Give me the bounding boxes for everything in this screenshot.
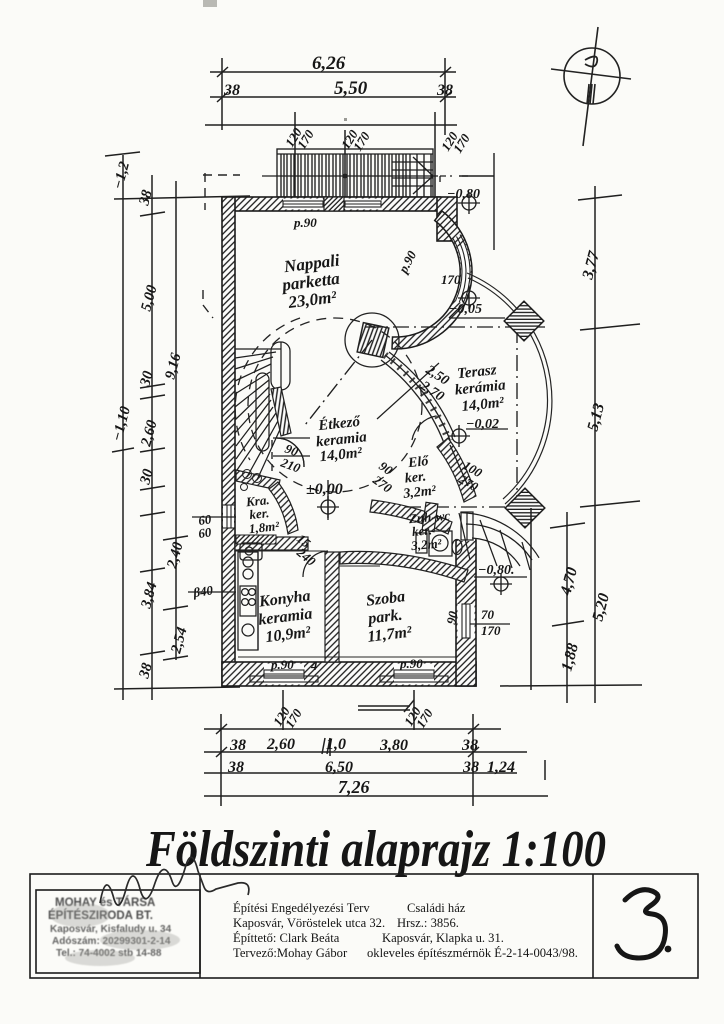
svg-text:5,20: 5,20 — [589, 592, 613, 623]
svg-text:6,26: 6,26 — [312, 53, 346, 74]
svg-text:Hrsz.: 3856.: Hrsz.: 3856. — [397, 916, 459, 930]
svg-text:7,26: 7,26 — [338, 777, 370, 797]
svg-text:4: 4 — [310, 658, 318, 673]
svg-text:38: 38 — [229, 737, 246, 754]
svg-text:Elő: Elő — [406, 454, 430, 471]
svg-text:5,00: 5,00 — [138, 283, 160, 313]
svg-text:Kaposvár, Klapka u. 31.: Kaposvár, Klapka u. 31. — [382, 931, 504, 945]
svg-text:170: 170 — [441, 272, 461, 287]
svg-text:−0,80: −0,80 — [447, 187, 480, 202]
svg-text:14,0m²: 14,0m² — [319, 445, 363, 465]
svg-text:Építtető: Clark Beáta: Építtető: Clark Beáta — [233, 931, 340, 945]
svg-text:38: 38 — [136, 661, 156, 681]
svg-text:38: 38 — [227, 759, 244, 776]
svg-text:−0,02: −0,02 — [466, 417, 499, 432]
svg-text:38: 38 — [223, 82, 240, 99]
svg-text:14,0m²: 14,0m² — [461, 395, 505, 415]
svg-text:3,2m²: 3,2m² — [410, 535, 444, 553]
svg-text:p.90: p.90 — [270, 657, 294, 672]
svg-text:1,0: 1,0 — [326, 736, 346, 753]
svg-text:38: 38 — [436, 82, 453, 99]
svg-text:p.90: p.90 — [395, 248, 420, 276]
svg-text:3,80: 3,80 — [379, 737, 408, 754]
svg-text:38: 38 — [136, 188, 156, 208]
svg-text:3,77: 3,77 — [579, 249, 603, 282]
svg-text:Építési Engedélyezési Terv: Építési Engedélyezési Terv — [233, 901, 370, 915]
svg-text:Tervező:Mohay Gábor: Tervező:Mohay Gábor — [233, 946, 348, 960]
svg-text:170: 170 — [481, 623, 501, 638]
svg-text:1,88: 1,88 — [558, 642, 582, 673]
svg-text:1,24: 1,24 — [487, 759, 515, 776]
svg-text:Földszinti alaprajz 1:100: Földszinti alaprajz 1:100 — [145, 821, 606, 878]
svg-text:38: 38 — [461, 737, 478, 754]
svg-text:70: 70 — [481, 607, 495, 622]
svg-text:2,40: 2,40 — [164, 540, 187, 571]
svg-text:−1,2: −1,2 — [110, 160, 133, 192]
svg-text:2,54: 2,54 — [168, 625, 191, 656]
svg-text:−0,80.: −0,80. — [478, 563, 514, 578]
svg-text:1,8m²: 1,8m² — [248, 518, 281, 536]
svg-text:−0,05: −0,05 — [449, 302, 482, 317]
svg-text:Kaposvár, Vöröstelek utca 32.: Kaposvár, Vöröstelek utca 32. — [233, 916, 385, 930]
svg-text:p.90: p.90 — [293, 215, 317, 230]
svg-text:210: 210 — [278, 454, 303, 475]
svg-text:3,2m²: 3,2m² — [402, 483, 438, 502]
svg-text:3,84: 3,84 — [138, 580, 161, 611]
svg-text:2,60: 2,60 — [266, 736, 295, 753]
svg-text:6,50: 6,50 — [325, 759, 353, 776]
svg-text:okleveles építészmérnök É-2-1: okleveles építészmérnök É-2-14-0043/98. — [367, 946, 578, 960]
svg-text:±0,00: ±0,00 — [306, 481, 343, 498]
svg-text:60: 60 — [197, 524, 212, 541]
svg-text:Családi ház: Családi ház — [407, 901, 466, 915]
svg-text:2,60: 2,60 — [138, 418, 161, 449]
svg-text:p.90: p.90 — [399, 656, 423, 671]
svg-text:β40: β40 — [191, 582, 214, 600]
svg-text:30: 30 — [137, 467, 157, 487]
svg-text:270: 270 — [369, 472, 395, 496]
svg-text:4,70: 4,70 — [557, 566, 581, 598]
svg-text:38: 38 — [462, 759, 479, 776]
svg-text:5,50: 5,50 — [334, 78, 368, 99]
svg-text:5,13: 5,13 — [584, 402, 608, 433]
svg-text:9,16: 9,16 — [162, 351, 184, 381]
svg-text:−1,10: −1,10 — [109, 404, 134, 443]
